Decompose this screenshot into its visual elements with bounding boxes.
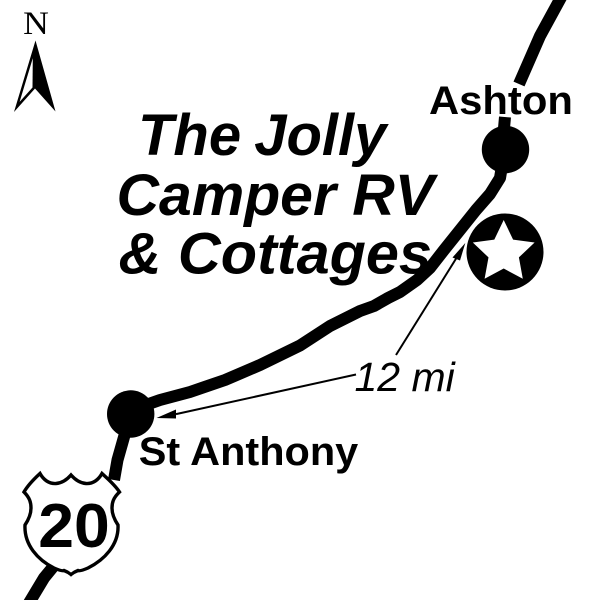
svg-text:Ashton: Ashton: [429, 78, 573, 123]
svg-text:N: N: [23, 5, 49, 42]
svg-text:St Anthony: St Anthony: [139, 429, 359, 474]
svg-text:Camper RV: Camper RV: [117, 163, 440, 227]
svg-text:& Cottages: & Cottages: [119, 222, 432, 286]
svg-text:The Jolly: The Jolly: [138, 103, 389, 168]
svg-text:20: 20: [38, 492, 109, 561]
svg-text:12 mi: 12 mi: [355, 354, 457, 400]
